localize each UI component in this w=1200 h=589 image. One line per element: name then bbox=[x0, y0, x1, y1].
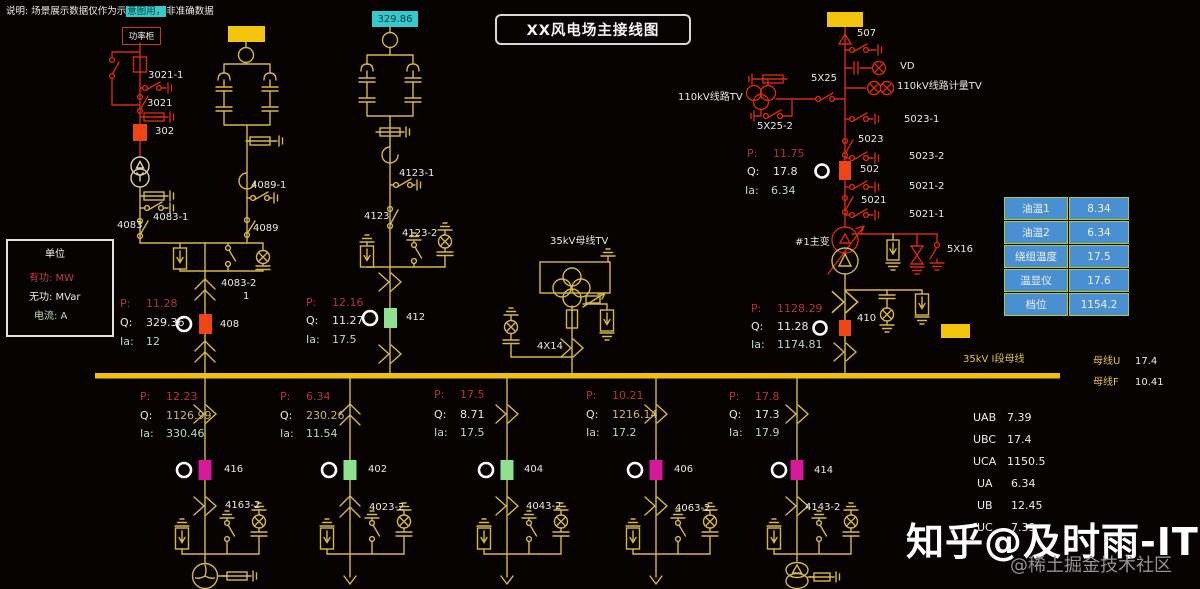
breaker-302[interactable] bbox=[133, 124, 147, 141]
bay1-q-row: Q:329.36 bbox=[120, 317, 185, 328]
label-4089-1: 4089-1 bbox=[251, 181, 286, 191]
closed-link-indicator-bus2[interactable] bbox=[941, 324, 970, 338]
label-5021: 5021 bbox=[861, 196, 886, 206]
note-suffix: 非准确数据 bbox=[166, 6, 214, 17]
bay1-p-row: P:11.28 bbox=[120, 298, 178, 309]
label-5021-1: 5021-1 bbox=[909, 210, 944, 220]
label-4063-2: 4063-2 bbox=[675, 504, 710, 514]
legend-active: 有功: MW bbox=[29, 274, 74, 284]
feeder5-ia-row: Ia:17.9 bbox=[729, 427, 780, 438]
breaker-408[interactable] bbox=[199, 314, 212, 334]
label-3021: 3021 bbox=[147, 99, 172, 109]
label-line-tv: 110kV线路TV bbox=[678, 93, 743, 103]
label-5023-2: 5023-2 bbox=[909, 152, 944, 162]
breaker-412[interactable] bbox=[384, 308, 397, 328]
scada-screen: 说明: 场景展示数据仅作为示意图用，非准确数据 XX风电场主接线图 功率柜 32… bbox=[0, 0, 1200, 589]
label-5023: 5023 bbox=[858, 135, 883, 145]
label-5x16: 5X16 bbox=[947, 245, 973, 255]
table-cell-label: 油温2 bbox=[1004, 221, 1068, 244]
bay2-p-row: P:12.16 bbox=[306, 297, 364, 308]
table-cell-value: 1154.2 bbox=[1069, 293, 1129, 316]
label-main-transformer: #1主变 bbox=[795, 238, 830, 248]
breaker-502[interactable] bbox=[839, 161, 851, 180]
unit-legend: 单位 有功: MW 无功: MVar 电流: A bbox=[6, 239, 114, 337]
table-cell-value: 17.5 bbox=[1069, 245, 1129, 268]
closed-link-indicator-110kv[interactable] bbox=[827, 12, 863, 27]
label-412: 412 bbox=[406, 313, 425, 323]
label-5x25: 5X25 bbox=[811, 74, 837, 84]
label-bus-tv: 35kV母线TV bbox=[550, 237, 608, 247]
feeder4-q-row: Q:1216.14 bbox=[586, 409, 658, 420]
label-4043-2: 4043-2 bbox=[526, 502, 561, 512]
main-q2-row: Q:11.28 bbox=[751, 321, 809, 332]
feeder4-ia-row: Ia:17.2 bbox=[586, 427, 637, 438]
legend-title: 单位 bbox=[45, 250, 65, 260]
page-title: XX风电场主接线图 bbox=[495, 14, 691, 45]
label-tap-1: 1 bbox=[243, 292, 249, 302]
label-4143-2: 4143-2 bbox=[805, 503, 840, 513]
table-cell-value: 6.34 bbox=[1069, 221, 1129, 244]
feeder2-p-row: P:6.34 bbox=[280, 391, 331, 402]
label-302: 302 bbox=[155, 127, 174, 137]
label-4163-2: 4163-2 bbox=[225, 501, 260, 511]
voltage-ubc: UBC17.4 bbox=[973, 434, 1032, 445]
note-prefix: 说明: 场景展示数据仅作为示 bbox=[6, 6, 126, 17]
table-cell-label: 油温1 bbox=[1004, 197, 1068, 220]
bus-name: 35kV I段母线 bbox=[963, 355, 1024, 365]
label-4123-1: 4123-1 bbox=[399, 169, 434, 179]
label-4083-1: 4083-1 bbox=[153, 213, 188, 223]
feeder2-q-row: Q:230.26 bbox=[280, 410, 345, 421]
transformer-table: 油温1 8.34 油温2 6.34 绕组温度 17.5 温显仪 17.6 档位 … bbox=[1004, 197, 1129, 316]
label-4123-2: 4123-2 bbox=[402, 229, 437, 239]
grounding-transformer-icon bbox=[786, 563, 808, 589]
table-cell-label: 绕组温度 bbox=[1004, 245, 1068, 268]
bus-f-row: 母线F10.41 bbox=[1093, 378, 1164, 388]
wind-turbine-icon bbox=[193, 564, 218, 589]
breaker-404[interactable] bbox=[501, 460, 514, 480]
feeder1-p-row: P:12.23 bbox=[140, 391, 198, 402]
table-cell-value: 17.6 bbox=[1069, 269, 1129, 292]
label-410: 410 bbox=[857, 314, 876, 324]
table-cell-label: 档位 bbox=[1004, 293, 1068, 316]
bay2-ia-row: Ia:17.5 bbox=[306, 334, 357, 345]
label-402: 402 bbox=[368, 465, 387, 475]
label-4023-2: 4023-2 bbox=[369, 503, 404, 513]
feeder3-ia-row: Ia:17.5 bbox=[434, 427, 485, 438]
label-5023-1: 5023-1 bbox=[904, 115, 939, 125]
breaker-410[interactable] bbox=[839, 320, 851, 336]
label-3021-1: 3021-1 bbox=[148, 71, 183, 81]
disclaimer-note: 说明: 场景展示数据仅作为示意图用，非准确数据 bbox=[6, 3, 214, 17]
main-q-row: Q:17.8 bbox=[747, 166, 798, 177]
legend-current: 电流: A bbox=[34, 312, 67, 322]
label-408: 408 bbox=[220, 320, 239, 330]
note-highlight: 意图用， bbox=[126, 6, 166, 17]
feeder3-q-row: Q:8.71 bbox=[434, 409, 485, 420]
voltage-uca: UCA1150.5 bbox=[973, 456, 1046, 467]
label-406: 406 bbox=[674, 465, 693, 475]
label-4123: 4123 bbox=[364, 212, 389, 222]
legend-reactive: 无功: MVar bbox=[29, 293, 80, 303]
label-502: 502 bbox=[860, 165, 879, 175]
table-cell-value: 8.34 bbox=[1069, 197, 1129, 220]
feeder1-ia-row: Ia:330.46 bbox=[140, 428, 205, 439]
label-5x25-2: 5X25-2 bbox=[757, 122, 793, 132]
label-4x14: 4X14 bbox=[537, 342, 563, 352]
voltage-ua: UA6.34 bbox=[977, 478, 1036, 489]
main-ia-row: Ia:6.34 bbox=[745, 185, 796, 196]
label-404: 404 bbox=[524, 465, 543, 475]
voltage-uab: UAB7.39 bbox=[973, 412, 1032, 423]
label-507: 507 bbox=[857, 29, 876, 39]
feeder3-p-row: P:17.5 bbox=[434, 389, 485, 400]
label-4089: 4089 bbox=[253, 224, 278, 234]
bay1-ia-row: Ia:12 bbox=[120, 336, 160, 347]
breaker-414[interactable] bbox=[791, 460, 804, 480]
bay2-q-row: Q:11.27 bbox=[306, 315, 364, 326]
main-p2-row: P:1128.29 bbox=[751, 303, 823, 314]
label-4083-2: 4083-2 bbox=[221, 279, 256, 289]
capacitor-readout: 329.86 bbox=[372, 11, 418, 27]
feeder4-p-row: P:10.21 bbox=[586, 390, 644, 401]
main-p-row: P:11.75 bbox=[747, 148, 805, 159]
watermark-juejin: @稀土掘金技术社区 bbox=[1010, 551, 1172, 577]
power-cabinet-box: 功率柜 bbox=[122, 27, 161, 45]
label-414: 414 bbox=[814, 466, 833, 476]
bus-u-row: 母线U17.4 bbox=[1093, 357, 1157, 367]
feeder1-q-row: Q:1126.99 bbox=[140, 410, 212, 421]
bus-bar-35kv bbox=[95, 373, 1060, 379]
voltage-ub: UB12.45 bbox=[977, 500, 1043, 511]
feeder5-p-row: P:17.8 bbox=[729, 391, 780, 402]
feeder2-ia-row: Ia:11.54 bbox=[280, 428, 338, 439]
label-metering-tv: 110kV线路计量TV bbox=[897, 82, 982, 92]
table-cell-label: 温显仪 bbox=[1004, 269, 1068, 292]
breaker-406[interactable] bbox=[650, 460, 663, 480]
label-4083: 4083 bbox=[117, 221, 142, 231]
cabinet-transformer bbox=[131, 157, 149, 187]
main-ia2-row: Ia:1174.81 bbox=[751, 339, 823, 350]
breaker-402[interactable] bbox=[344, 460, 357, 480]
label-5021-2: 5021-2 bbox=[909, 182, 944, 192]
label-vd: VD bbox=[900, 62, 915, 72]
breaker-416[interactable] bbox=[199, 460, 212, 480]
label-416: 416 bbox=[224, 465, 243, 475]
feeder5-q-row: Q:17.3 bbox=[729, 409, 780, 420]
closed-link-indicator-bay1[interactable] bbox=[228, 26, 265, 42]
